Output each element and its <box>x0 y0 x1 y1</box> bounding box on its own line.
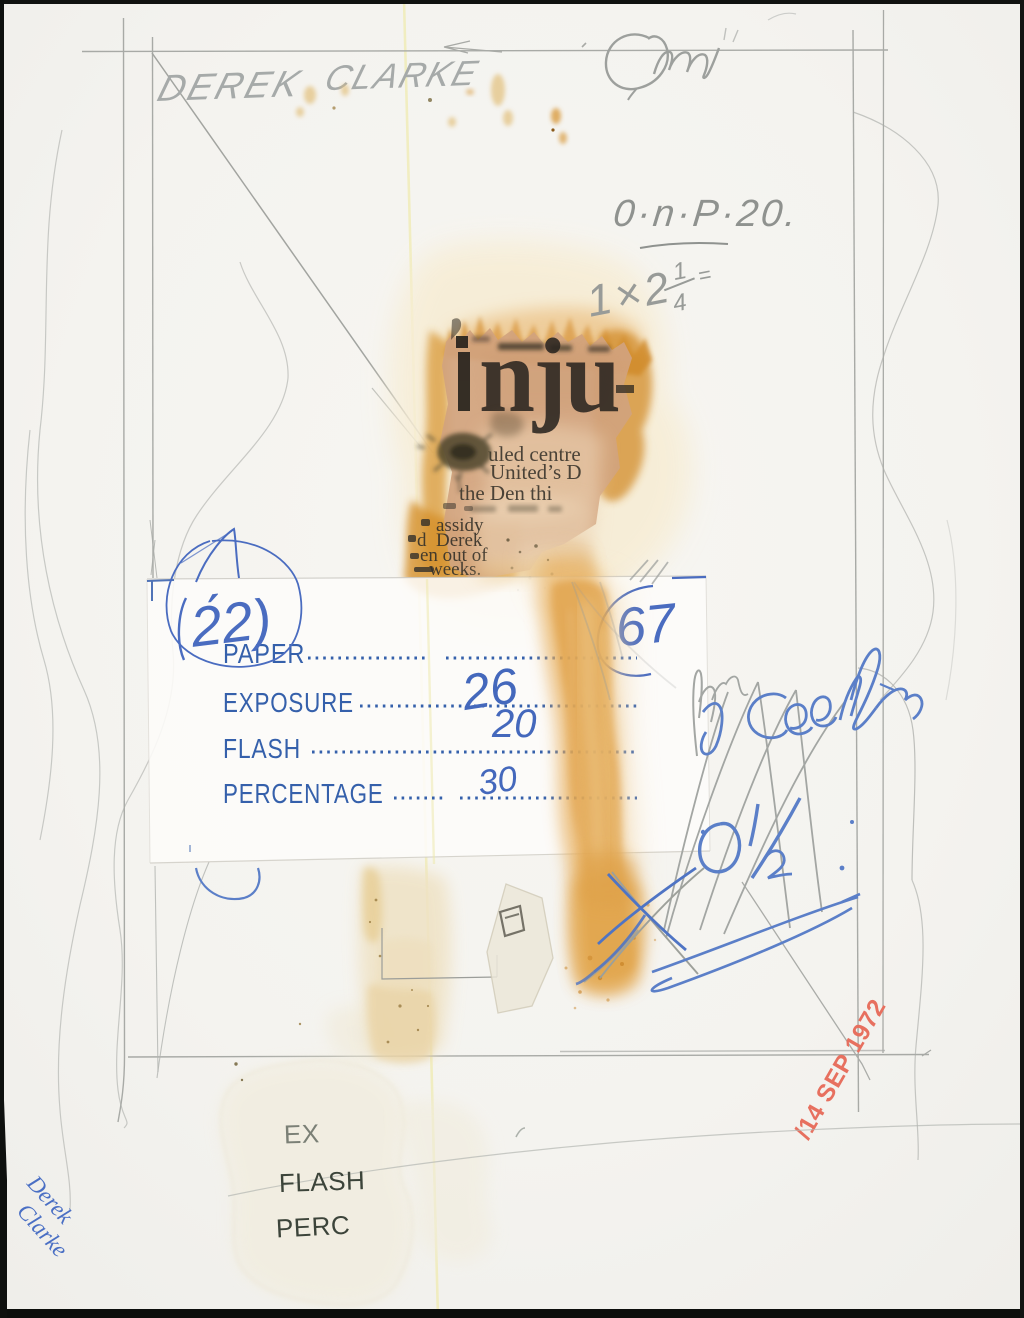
svg-text:30: 30 <box>476 759 521 803</box>
svg-text:20: 20 <box>491 702 537 746</box>
svg-text:2́2): 2́2) <box>186 586 275 659</box>
svg-text:EX: EX <box>283 1118 320 1149</box>
svg-text:the Den thi: the Den thi <box>459 481 552 505</box>
svg-text:0·n·P·20.: 0·n·P·20. <box>611 193 801 235</box>
svg-text:FLASH: FLASH <box>223 734 301 765</box>
svg-text:FLASH: FLASH <box>278 1165 365 1198</box>
svg-text:PERC: PERC <box>275 1210 351 1244</box>
svg-text:PERCENTAGE: PERCENTAGE <box>223 779 384 810</box>
svg-text:EXPOSURE: EXPOSURE <box>223 688 354 719</box>
svg-text:DEREK: DEREK <box>153 64 307 110</box>
